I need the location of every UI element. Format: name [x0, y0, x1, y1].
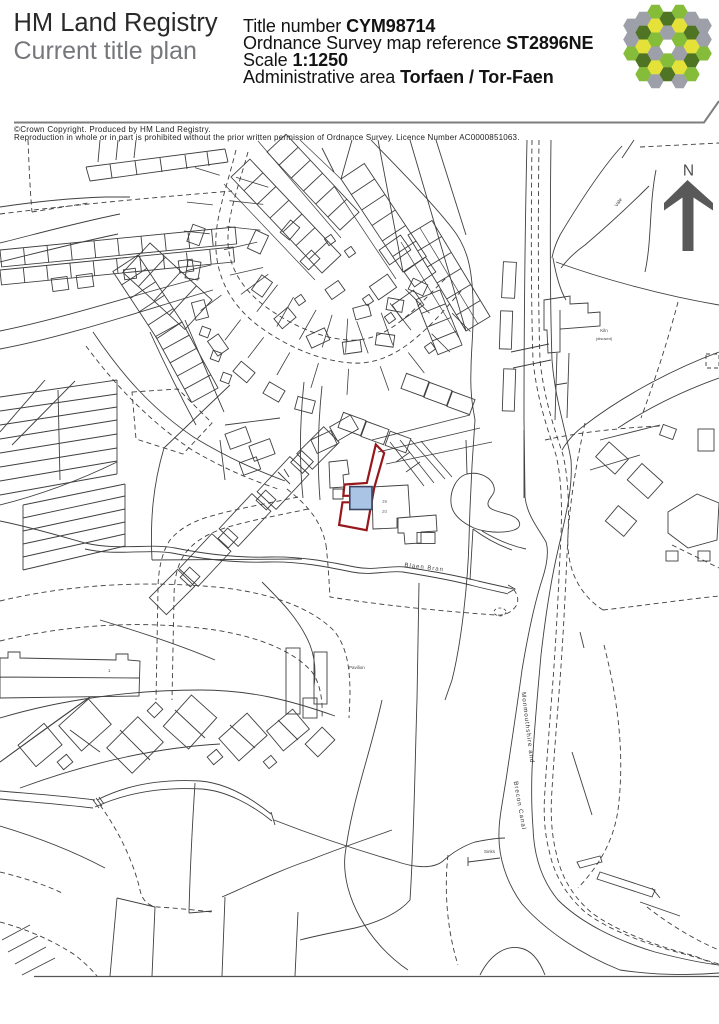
svg-text:20: 20: [382, 509, 388, 514]
svg-text:N: N: [683, 163, 694, 180]
svg-text:Kiln: Kiln: [600, 328, 608, 333]
svg-text:1: 1: [108, 668, 111, 673]
svg-text:Brecon Canal: Brecon Canal: [512, 781, 527, 831]
svg-text:Vale: Vale: [614, 197, 624, 208]
svg-text:Sinks: Sinks: [484, 849, 496, 854]
svg-text:Pavilion: Pavilion: [349, 665, 365, 670]
svg-text:39: 39: [382, 499, 388, 504]
svg-text:Monmouthshire and: Monmouthshire and: [520, 692, 536, 764]
svg-text:Blaen Bran: Blaen Bran: [404, 563, 444, 574]
svg-text:(disused): (disused): [596, 336, 613, 341]
